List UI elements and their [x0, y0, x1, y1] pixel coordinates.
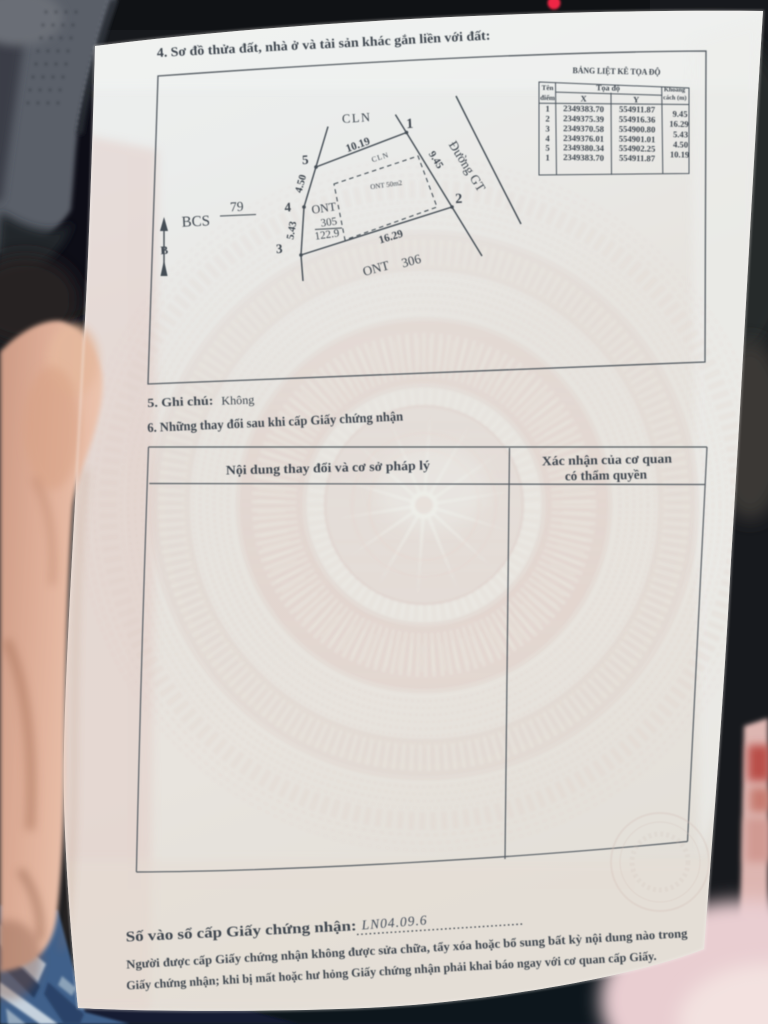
svg-text:79: 79	[230, 199, 245, 215]
svg-text:có thẩm quyền: có thẩm quyền	[565, 467, 648, 484]
svg-text:điểm: điểm	[540, 94, 555, 102]
svg-text:10.19: 10.19	[670, 149, 690, 159]
svg-text:4: 4	[284, 199, 292, 214]
svg-text:3: 3	[276, 241, 284, 256]
svg-text:CLN: CLN	[342, 110, 372, 126]
svg-text:BẢNG LIỆT KÊ TỌA ĐỘ: BẢNG LIỆT KÊ TỌA ĐỘ	[572, 65, 660, 77]
svg-text:16.29: 16.29	[669, 119, 689, 129]
svg-text:2: 2	[455, 192, 463, 207]
svg-text:2: 2	[545, 114, 550, 124]
svg-text:4.50: 4.50	[673, 139, 688, 149]
svg-text:BCS: BCS	[181, 213, 210, 230]
svg-text:Tên: Tên	[542, 84, 554, 92]
svg-text:Khoảng: Khoảng	[664, 86, 686, 93]
svg-text:5: 5	[545, 143, 550, 153]
svg-text:5: 5	[302, 152, 310, 167]
svg-text:2349383.70: 2349383.70	[563, 152, 604, 163]
svg-text:Xác nhận của cơ quan: Xác nhận của cơ quan	[542, 451, 673, 469]
svg-text:9.45: 9.45	[672, 109, 687, 119]
svg-text:1: 1	[545, 104, 550, 114]
svg-text:X: X	[580, 93, 587, 103]
svg-text:3: 3	[545, 123, 550, 133]
svg-text:554911.87: 554911.87	[619, 153, 656, 164]
svg-text:Không: Không	[221, 393, 255, 408]
svg-text:5.43: 5.43	[673, 129, 688, 139]
svg-text:Y: Y	[633, 94, 639, 104]
svg-text:1: 1	[545, 152, 550, 162]
svg-text:B: B	[160, 245, 169, 257]
svg-text:1: 1	[406, 117, 414, 132]
svg-text:5. Ghi chú:: 5. Ghi chú:	[147, 393, 213, 410]
svg-text:cách (m): cách (m)	[663, 94, 686, 101]
svg-text:Tọa độ: Tọa độ	[596, 83, 620, 92]
